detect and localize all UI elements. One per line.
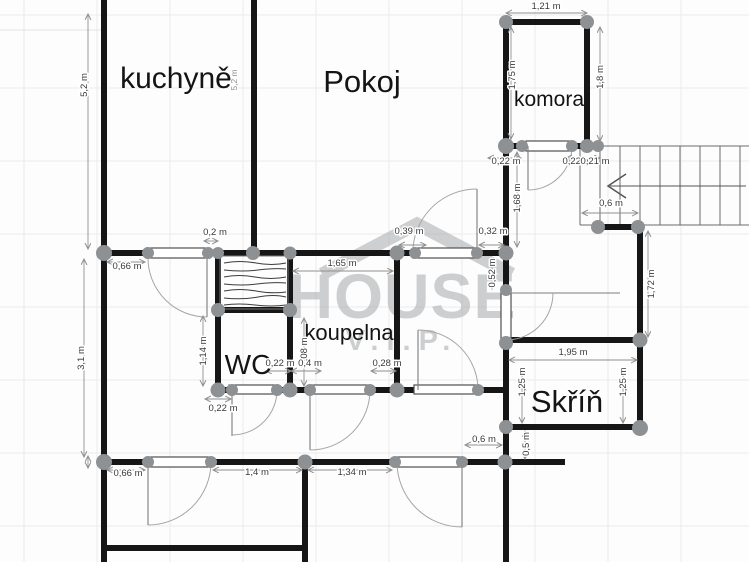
dim-label: 0,22 m	[265, 358, 294, 369]
dim-label: 1,21 m	[531, 1, 560, 12]
door-corridor	[414, 385, 479, 394]
door-koupelna	[309, 385, 371, 394]
door-komora	[526, 141, 572, 151]
door-pokoj	[413, 248, 477, 258]
dim-label: 5,2 m	[229, 69, 239, 90]
dim-label: 1,75 m	[507, 60, 518, 89]
dim-label: 1,65 m	[327, 258, 356, 269]
room-label-pokoj: Pokoj	[323, 64, 401, 99]
dim-label: 0,2 m	[203, 227, 227, 238]
dim-label: 1,4 m	[245, 467, 269, 478]
dim-label: 1,14 m	[198, 336, 209, 365]
dim-label: 1,72 m	[646, 269, 657, 298]
shower-hatch	[220, 256, 288, 309]
dim-label: 0,66 m	[112, 261, 141, 272]
dim-label: 0,4 m	[298, 358, 322, 369]
floorplan-canvas: HOUSE V.I.P.	[0, 0, 749, 562]
room-label-kuchyne: kuchyně	[120, 62, 232, 95]
dim-label: 0,6 m	[472, 434, 496, 445]
dim-label: 0,22 m	[208, 403, 237, 414]
room-label-wc: WC	[225, 349, 272, 380]
dim-label: 5,2 m	[79, 73, 90, 97]
room-label-koupelna: koupelna	[304, 320, 394, 345]
dim-label: 0,5 m	[521, 432, 532, 456]
dim-label: 1,25 m	[618, 367, 629, 396]
dim-label: 1,25 m	[517, 367, 528, 396]
dim-label: 0,28 m	[372, 358, 401, 369]
door-kitchen-hall	[146, 248, 210, 258]
dim-label: 1,34 m	[337, 467, 366, 478]
room-label-komora: komora	[514, 88, 584, 111]
room-label-skrin: Skříň	[531, 384, 603, 419]
dim-label: 3,1 m	[76, 346, 87, 370]
room-labels: kuchyně Pokoj komora koupelna WC Skříň	[120, 62, 603, 419]
dim-label: 1,95 m	[558, 347, 587, 358]
dim-label: 1,8 m	[595, 65, 606, 89]
dim-label: 0,21 m	[580, 156, 609, 167]
dim-label: 0,52 m	[487, 258, 498, 287]
dim-label: 0,66 m	[113, 468, 142, 479]
dim-label: 0,6 m	[599, 198, 623, 209]
floorplan-drawing: HOUSE V.I.P.	[0, 0, 749, 562]
door-hall-right	[501, 292, 511, 340]
door-bottom-middle	[395, 457, 462, 467]
dim-label: 0,39 m	[394, 226, 423, 237]
dim-label: 1,68 m	[512, 183, 523, 212]
dim-label: 0,32 m	[478, 226, 507, 237]
door-bottom-left	[146, 457, 211, 467]
dim-label: 0,22 m	[491, 156, 520, 167]
